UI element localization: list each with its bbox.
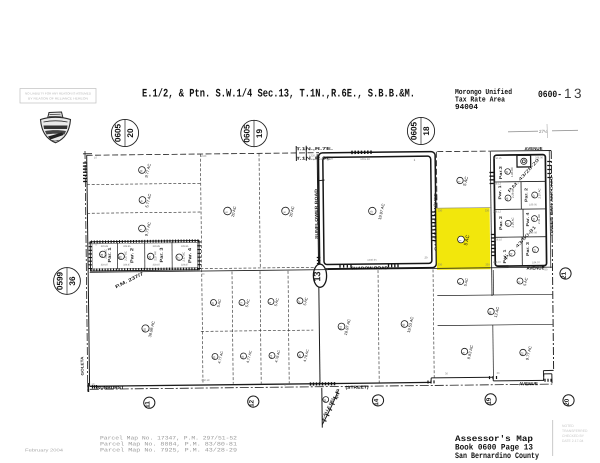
svg-text:53: 53 xyxy=(532,249,536,253)
svg-text:2.29 AC: 2.29 AC xyxy=(511,218,515,228)
svg-text:SUNFLOWER ROAD: SUNFLOWER ROAD xyxy=(313,189,319,239)
svg-text:660.18: 660.18 xyxy=(202,379,211,382)
svg-text:24: 24 xyxy=(100,253,104,257)
svg-text:17: 17 xyxy=(297,300,301,304)
svg-text:21: 21 xyxy=(561,271,568,279)
svg-text:26: 26 xyxy=(148,255,152,259)
svg-text:0600-: 0600- xyxy=(538,89,562,100)
svg-text:329.85: 329.85 xyxy=(123,245,131,248)
svg-text:1320: 1320 xyxy=(309,154,315,157)
svg-text:51: 51 xyxy=(509,252,513,256)
svg-text:13: 13 xyxy=(369,210,373,214)
svg-text:330: 330 xyxy=(438,263,443,266)
svg-text:189.95: 189.95 xyxy=(529,203,538,206)
svg-text:21: 21 xyxy=(239,302,243,306)
svg-text:329.87: 329.87 xyxy=(101,263,109,266)
svg-text:2.27 AC: 2.27 AC xyxy=(105,249,108,259)
svg-text:2.37 AC: 2.37 AC xyxy=(537,189,541,199)
svg-text:AVENUE: AVENUE xyxy=(524,146,542,151)
svg-text:Assessor's Map: Assessor's Map xyxy=(455,434,533,444)
svg-text:329.85: 329.85 xyxy=(101,245,109,248)
svg-text:19: 19 xyxy=(255,129,264,139)
svg-text:16: 16 xyxy=(241,355,245,359)
svg-text:GOLETA: GOLETA xyxy=(80,356,84,375)
svg-text:27½: 27½ xyxy=(539,129,548,134)
svg-text:SHADOW ROAD: SHADOW ROAD xyxy=(351,265,388,270)
svg-text:57: 57 xyxy=(532,194,536,198)
svg-text:RIO: RIO xyxy=(335,388,339,398)
svg-text:TRANSFERRED: TRANSFERRED xyxy=(562,429,588,433)
svg-text:329.87: 329.87 xyxy=(181,263,189,266)
svg-text:Par. 4: Par. 4 xyxy=(525,211,530,226)
svg-text:14: 14 xyxy=(269,355,273,359)
svg-text:44: 44 xyxy=(339,326,343,330)
svg-text:13: 13 xyxy=(312,271,323,281)
svg-text:20: 20 xyxy=(143,328,147,332)
svg-text:19: 19 xyxy=(298,354,302,358)
svg-text:Par. 2: Par. 2 xyxy=(129,247,134,263)
svg-text:258.16: 258.16 xyxy=(494,157,503,160)
svg-text:SUNBURST: SUNBURST xyxy=(97,385,125,390)
svg-text:1.84 AC: 1.84 AC xyxy=(510,167,514,177)
svg-text:329.87: 329.87 xyxy=(123,263,131,266)
svg-text:13: 13 xyxy=(564,86,584,101)
svg-text:94004: 94004 xyxy=(455,103,478,112)
svg-text:58: 58 xyxy=(505,170,509,174)
svg-text:189.98: 189.98 xyxy=(529,231,538,234)
svg-text:40: 40 xyxy=(323,399,327,403)
svg-text:Par. 2: Par. 2 xyxy=(498,215,503,230)
svg-text:AVENUE: AVENUE xyxy=(519,381,538,386)
svg-text:February 2004: February 2004 xyxy=(25,448,64,453)
svg-text:0605: 0605 xyxy=(114,123,123,142)
svg-text:329.85: 329.85 xyxy=(153,245,161,248)
svg-text:DATE 2-17-04: DATE 2-17-04 xyxy=(562,439,584,443)
svg-text:25: 25 xyxy=(118,255,122,259)
svg-text:2.27 AC: 2.27 AC xyxy=(154,251,157,261)
svg-text:12: 12 xyxy=(520,352,524,356)
svg-text:2.27 AC: 2.27 AC xyxy=(183,252,186,262)
svg-text:BY REASON OF RELIANCE HEREON: BY REASON OF RELIANCE HEREON xyxy=(28,97,88,101)
svg-text:(STREET): (STREET) xyxy=(345,384,369,389)
svg-text:11: 11 xyxy=(144,401,151,409)
svg-text:56: 56 xyxy=(505,197,509,201)
svg-text:NOTED: NOTED xyxy=(562,424,574,428)
svg-text:36: 36 xyxy=(68,276,77,286)
svg-text:Book 0600 Page 13: Book 0600 Page 13 xyxy=(455,443,533,453)
svg-text:329.85: 329.85 xyxy=(181,245,189,248)
svg-text:330: 330 xyxy=(485,209,490,212)
svg-text:E.1/2, & Ptn. S.W.1/4 Sec.13,: E.1/2, & Ptn. S.W.1/4 Sec.13, T.1N.,R.6E… xyxy=(142,88,415,101)
svg-text:CHECKED BY: CHECKED BY xyxy=(562,434,585,438)
svg-text:CALLE SAN ANTONIO: CALLE SAN ANTONIO xyxy=(549,175,554,236)
svg-text:1091.28: 1091.28 xyxy=(360,158,370,161)
svg-text:52: 52 xyxy=(505,222,509,226)
svg-text:AVENUE: AVENUE xyxy=(526,265,544,270)
svg-text:Par. 3: Par. 3 xyxy=(525,241,530,256)
svg-text:Par. 4: Par. 4 xyxy=(187,247,192,263)
svg-text:Par. 1: Par. 1 xyxy=(497,184,502,199)
svg-text:15: 15 xyxy=(212,356,216,360)
svg-text:T.1N.,R.7E.: T.1N.,R.7E. xyxy=(296,146,333,151)
svg-text:288.06: 288.06 xyxy=(535,156,544,159)
svg-text:258.07: 258.07 xyxy=(493,261,502,264)
svg-text:2.31 AC: 2.31 AC xyxy=(537,214,541,224)
svg-text:184.97: 184.97 xyxy=(532,261,541,264)
svg-text:330: 330 xyxy=(485,263,490,266)
svg-text:20: 20 xyxy=(126,128,135,138)
svg-text:0605: 0605 xyxy=(410,121,419,140)
svg-text:19: 19 xyxy=(486,397,493,405)
svg-text:2.29 AC: 2.29 AC xyxy=(511,188,515,198)
svg-text:NO LIABILITY FOR ANY REASON IS: NO LIABILITY FOR ANY REASON IS ASSUMED xyxy=(25,92,92,96)
svg-text:0605: 0605 xyxy=(243,124,252,143)
svg-text:20: 20 xyxy=(564,398,571,406)
svg-text:18: 18 xyxy=(211,302,215,306)
svg-text:San Bernardino County: San Bernardino County xyxy=(455,451,539,461)
svg-text:Par.3: Par.3 xyxy=(498,165,503,179)
svg-text:258.12: 258.12 xyxy=(493,182,502,185)
svg-text:54: 54 xyxy=(532,218,536,222)
svg-text:0599: 0599 xyxy=(56,271,65,290)
svg-text:329.87: 329.87 xyxy=(153,263,161,266)
svg-text:2.27 AC: 2.27 AC xyxy=(125,251,128,261)
svg-text:Parcel Map No. 7925, P.M. 43/2: Parcel Map No. 7925, P.M. 43/28-29 xyxy=(100,448,237,454)
svg-text:11: 11 xyxy=(139,169,143,172)
svg-text:Par. 2: Par. 2 xyxy=(523,187,528,202)
svg-text:258.10: 258.10 xyxy=(494,238,503,241)
svg-text:12: 12 xyxy=(248,399,255,407)
svg-text:1320: 1320 xyxy=(201,155,207,158)
svg-text:18: 18 xyxy=(422,126,431,136)
svg-text:258.12: 258.12 xyxy=(493,210,502,213)
svg-text:Par. 1: Par. 1 xyxy=(502,248,507,263)
svg-text:27: 27 xyxy=(176,256,180,260)
svg-text:14: 14 xyxy=(373,398,380,406)
svg-text:10: 10 xyxy=(488,311,492,315)
svg-text:330: 330 xyxy=(438,209,443,212)
svg-text:45: 45 xyxy=(402,323,406,327)
svg-text:1090.95: 1090.95 xyxy=(367,259,377,262)
svg-text:Par. 3: Par. 3 xyxy=(159,247,164,263)
